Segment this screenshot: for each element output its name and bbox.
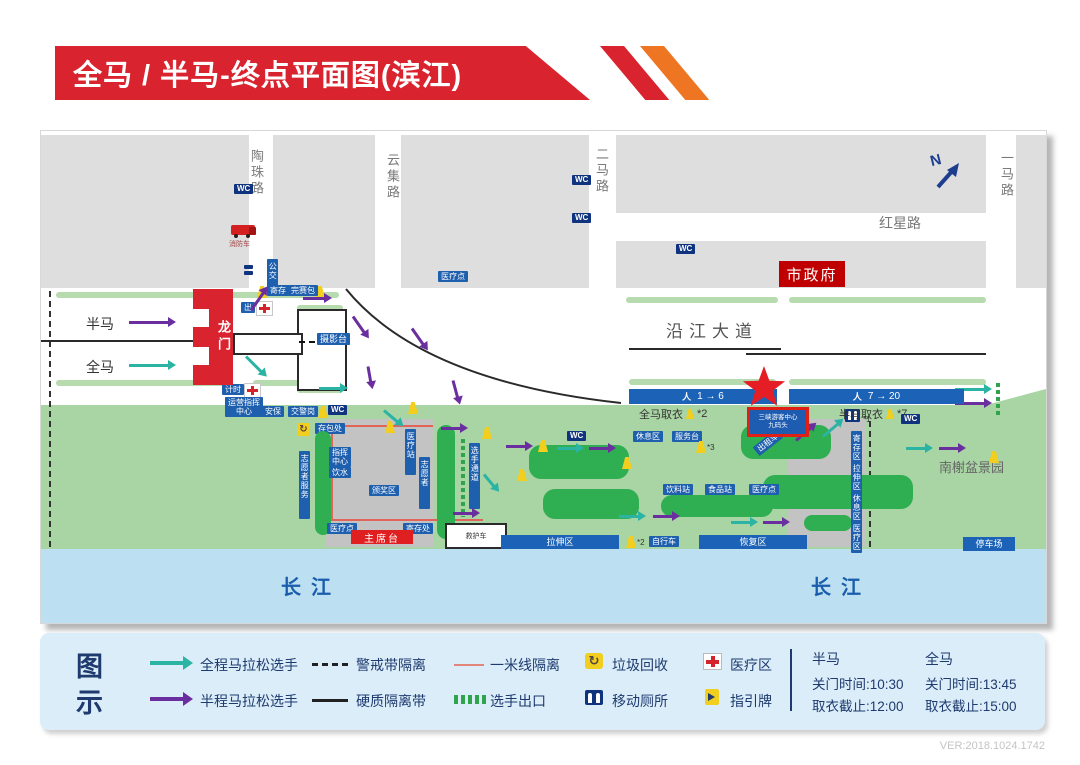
- full-close-time: 关门时间:13:45: [925, 673, 1017, 693]
- zone-bar: 停车场: [963, 537, 1015, 551]
- garbage-recycle-icon: ↻: [585, 653, 603, 669]
- map-text: *3: [707, 443, 715, 452]
- guide-sign-icon: [686, 409, 694, 419]
- dashed-connector: [299, 341, 315, 343]
- half-marathon-arrow: [939, 447, 959, 450]
- pickup-bar-half: 人 7 → 20: [789, 389, 964, 404]
- wc-tag: WC: [234, 184, 253, 194]
- hanger-icon: 人: [682, 390, 691, 403]
- barrier-line: [746, 353, 986, 355]
- facility-tag: 医疗区: [851, 521, 862, 553]
- half-times-title: 半马: [812, 649, 840, 669]
- pickup-label-half-text: 半马取衣: [839, 406, 883, 422]
- pickup-range-full: 1 → 6: [697, 391, 724, 402]
- zone-bar: 拉伸区: [501, 535, 619, 549]
- north-letter: N: [928, 151, 943, 170]
- greenery: [763, 475, 913, 509]
- facility-tag: 医疗点: [438, 271, 468, 282]
- street-hongxing-road: 红星路: [879, 213, 921, 233]
- legend-one-meter: 一米线隔离: [490, 655, 560, 675]
- runner-exit-marks: [461, 439, 465, 517]
- street-yunji-road: 云集路: [383, 153, 402, 201]
- city-block: [1016, 135, 1046, 288]
- grandstand: [297, 309, 347, 391]
- medical-cross-icon: [244, 383, 261, 398]
- half-marathon-arrow: [441, 427, 461, 430]
- half-close-time: 关门时间:10:30: [812, 673, 904, 693]
- facility-tag: 指挥中心: [329, 447, 351, 467]
- half-marathon-arrow: [763, 521, 783, 524]
- map-text: *2: [637, 538, 645, 547]
- one-meter-line-icon: [454, 664, 484, 666]
- half-clothes-deadline: 取衣截止:12:00: [812, 695, 904, 715]
- hard-barrier-line-icon: [312, 699, 348, 702]
- wc-tag: WC: [328, 405, 347, 415]
- barrier-line: [41, 340, 194, 342]
- medical-cross-icon: [703, 653, 722, 670]
- recycle-icon: ↻: [297, 423, 310, 436]
- full-marathon-arrow: [129, 364, 169, 367]
- full-marathon-arrow: [906, 447, 926, 450]
- half-marathon-arrow: [653, 515, 673, 518]
- cordon-line-icon: [312, 663, 348, 666]
- facility-tag: 安保: [262, 406, 284, 417]
- facility-tag: 志愿者服务: [299, 451, 310, 519]
- wc-tag: WC: [567, 431, 586, 441]
- legend-toilet: 移动厕所: [612, 691, 668, 711]
- cordon-dashed-line: [49, 291, 51, 547]
- facility-tag: 交警岗: [288, 406, 318, 417]
- full-marathon-arrow: [619, 515, 639, 518]
- pickup-note-half: *7: [897, 408, 907, 420]
- full-marathon-arrow: [731, 521, 751, 524]
- pickup-label-full-text: 全马取衣: [639, 406, 683, 422]
- greenery: [437, 425, 455, 539]
- venue-map: 长江 长江 陶珠路云集路二马路一马路红星路沿江大道WCWCWCWCWCWCWC消…: [40, 130, 1047, 624]
- facility-tag: 拉伸区: [851, 461, 862, 495]
- facility-tag: 计时: [222, 384, 244, 395]
- legend-guide-sign: 指引牌: [730, 691, 772, 711]
- street-erma-road: 二马路: [592, 147, 611, 195]
- facility-tag: 完赛包: [288, 285, 318, 296]
- pier-sign: 三峡游客中心 九码头: [747, 407, 809, 437]
- zone-bar: 恢复区: [699, 535, 807, 549]
- city-block: [401, 135, 589, 288]
- runner-exit-icon: [454, 695, 486, 704]
- legend-panel: 图 示 全程马拉松选手 半程马拉松选手 警戒带隔离 硬质隔离带 一米线隔离 选手…: [40, 633, 1045, 730]
- barrier-line: [629, 348, 781, 350]
- facility-tag: 颁奖区: [369, 485, 399, 496]
- legend-runner-exit: 选手出口: [490, 691, 546, 711]
- facility-tag: 食品站: [705, 484, 735, 495]
- full-marathon-arrow-icon: [150, 661, 184, 665]
- city-block: [273, 135, 375, 288]
- facility-tag: 休息区: [633, 431, 663, 442]
- photo-platform-tag: 摄影台: [317, 333, 350, 345]
- half-marathon-arrow: [129, 321, 169, 324]
- legend-hard-barrier: 硬质隔离带: [356, 691, 426, 711]
- full-clothes-deadline: 取衣截止:15:00: [925, 695, 1017, 715]
- wc-tag: WC: [676, 244, 695, 254]
- facility-tag: 寄存区: [851, 431, 862, 465]
- guide-sign-icon: [886, 409, 894, 419]
- map-text: 消防车: [229, 239, 250, 249]
- finish-gate-tooth: [193, 289, 210, 309]
- finish-gate-tooth: [193, 365, 210, 385]
- legend-title-char1: 图: [76, 645, 105, 684]
- hanger-icon: 人: [853, 390, 862, 403]
- street-yima-road: 一马路: [997, 151, 1016, 199]
- legend-medical: 医疗区: [730, 655, 772, 675]
- facility-tag: 休息区: [851, 491, 862, 525]
- city-block: [41, 135, 249, 288]
- half-marathon-lane-label: 半马: [86, 314, 114, 334]
- fire-truck-icon: [231, 225, 255, 235]
- facility-tag: 志愿者: [419, 457, 430, 509]
- city-hall-label: 市政府: [779, 261, 845, 287]
- one-meter-line: [331, 519, 483, 521]
- one-meter-line: [331, 425, 433, 427]
- pier-sign-line1: 三峡游客中心: [759, 414, 798, 422]
- finish-gate: 龙门: [209, 289, 233, 385]
- north-arrow-icon: N: [926, 149, 966, 193]
- pickup-note-full: *2: [697, 408, 707, 420]
- facility-tag: 运营指挥中心: [225, 397, 263, 417]
- title-banner: 全马 / 半马-终点平面图(滨江): [55, 46, 590, 100]
- facility-tag: 自行车: [649, 536, 679, 547]
- half-marathon-arrow: [506, 445, 526, 448]
- legend-full-runner: 全程马拉松选手: [200, 655, 298, 675]
- greenery: [804, 515, 852, 531]
- main-stage-label: 主席台: [351, 530, 413, 544]
- full-times-title: 全马: [925, 649, 953, 669]
- legend-half-runner: 半程马拉松选手: [200, 691, 298, 711]
- page-title: 全马 / 半马-终点平面图(滨江): [55, 52, 462, 94]
- pickup-range-half: 7 → 20: [868, 391, 900, 402]
- wc-tag: WC: [572, 213, 591, 223]
- half-marathon-arrow: [303, 297, 325, 300]
- runner-exit-marks: [996, 383, 1000, 415]
- facility-tag: 医疗点: [749, 484, 779, 495]
- half-marathon-arrow: [453, 512, 473, 515]
- pier-sign-line2: 九码头: [768, 422, 788, 430]
- pickup-label-half: 半马取衣 *7: [839, 406, 907, 422]
- bus-icons: [244, 265, 253, 269]
- facility-tag: 选手通道: [469, 443, 480, 509]
- guide-sign-icon: [705, 689, 719, 705]
- curb-strip: [789, 379, 986, 385]
- finish-gate-tooth: [193, 327, 210, 347]
- full-marathon-arrow: [319, 387, 341, 390]
- version-text: VER:2018.1024.1742: [940, 740, 1045, 752]
- facility-tag: 医疗站: [405, 429, 416, 475]
- facility-tag: 服务台: [672, 431, 702, 442]
- facility-tag: 饮水: [329, 467, 351, 478]
- curb-strip: [626, 297, 778, 303]
- full-marathon-lane-label: 全马: [86, 357, 114, 377]
- street-yanjiang-avenue: 沿江大道: [666, 317, 758, 342]
- legend-garbage: 垃圾回收: [612, 655, 668, 675]
- legend-title-char2: 示: [76, 681, 105, 720]
- poster: 全马 / 半马-终点平面图(滨江) 长江 长江 陶珠路云集路二马路一马路红星路沿…: [0, 0, 1080, 765]
- curb-strip: [789, 297, 986, 303]
- ambulance-box: 救护车: [445, 523, 507, 549]
- legend-cordon: 警戒带隔离: [356, 655, 426, 675]
- half-marathon-arrow-icon: [150, 697, 184, 701]
- wc-tag: WC: [572, 175, 591, 185]
- finish-chute: [233, 333, 303, 355]
- pickup-label-full: 全马取衣 *2: [639, 406, 707, 422]
- facility-tag: 饮料站: [663, 484, 693, 495]
- half-marathon-arrow: [589, 447, 609, 450]
- full-marathon-arrow: [557, 447, 577, 450]
- medical-cross-icon: [256, 301, 273, 316]
- star-icon: [741, 365, 787, 409]
- legend-divider: [790, 649, 792, 711]
- mobile-toilet-icon: [585, 690, 603, 705]
